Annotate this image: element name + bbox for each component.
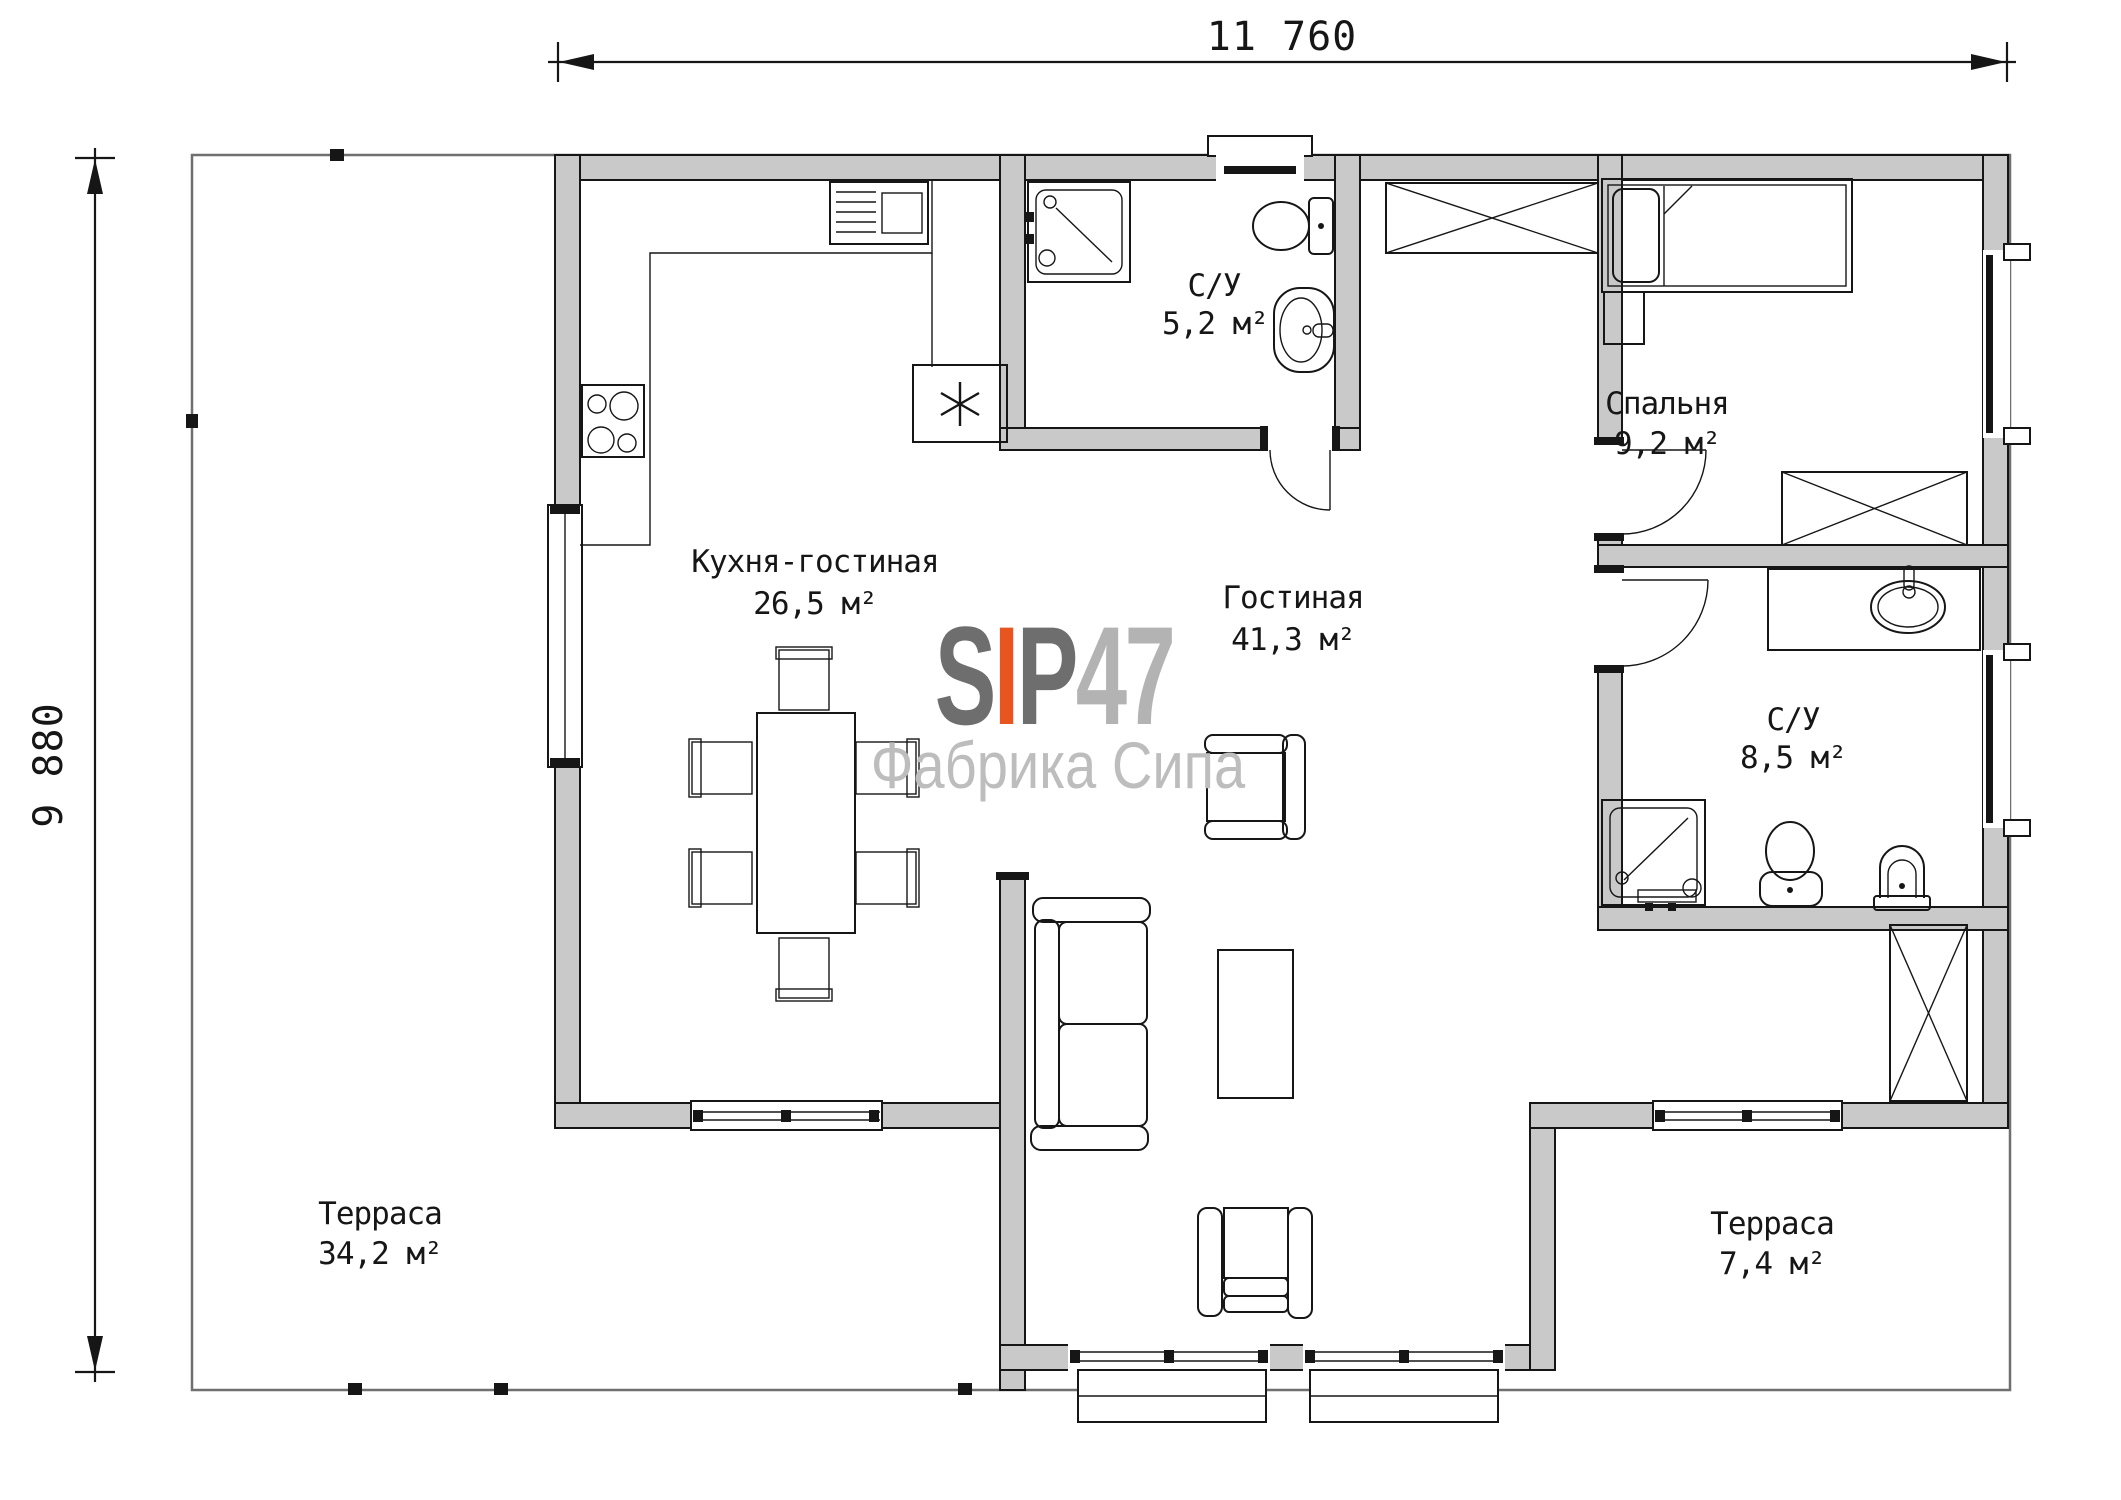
deck-post bbox=[958, 1383, 972, 1395]
room-area: 5,2 м² bbox=[1162, 306, 1268, 342]
door-swing bbox=[1622, 580, 1708, 666]
door-jamb bbox=[1594, 665, 1624, 673]
armchair-2 bbox=[1198, 1208, 1312, 1318]
armrest bbox=[1198, 1208, 1222, 1316]
dining-chair-left-lower bbox=[689, 849, 752, 907]
wall-living-protrusion-left bbox=[1000, 878, 1025, 1390]
fridge-snowflake-icon bbox=[941, 382, 979, 426]
terrace-door-left bbox=[1068, 1343, 1270, 1422]
window-sash bbox=[693, 1110, 703, 1122]
shower-drain bbox=[1044, 196, 1056, 208]
window-sash bbox=[550, 505, 580, 514]
seat-cushion bbox=[1059, 1024, 1147, 1126]
armrest bbox=[1288, 1208, 1312, 1318]
window-glazing bbox=[1986, 655, 1993, 823]
door-bath2 bbox=[1594, 565, 1708, 673]
door-sash bbox=[1493, 1350, 1503, 1363]
dining-chair-top bbox=[776, 647, 832, 710]
kitchen-counter-edge bbox=[580, 180, 932, 545]
label-bath1: С/У 5,2 м² bbox=[1162, 268, 1268, 342]
window-bottom-left bbox=[691, 1101, 882, 1130]
room-area: 26,5 м² bbox=[753, 586, 877, 622]
burner bbox=[618, 434, 636, 452]
window-kitchen-left bbox=[548, 505, 582, 767]
logo-subtitle: Фабрика Сипа bbox=[871, 729, 1246, 802]
wall-living-protrusion-right bbox=[1530, 1103, 1555, 1370]
backrest bbox=[1224, 1278, 1288, 1296]
door-jamb bbox=[1594, 565, 1624, 573]
bed-blanket-fold bbox=[1664, 186, 1692, 214]
sink-basin bbox=[882, 193, 922, 233]
dining-chair-bottom bbox=[776, 938, 832, 1001]
dimension-top-value: 11 760 bbox=[1207, 14, 1358, 60]
closet-living-nook bbox=[1890, 925, 1967, 1101]
burner bbox=[610, 392, 638, 420]
window-sash bbox=[1224, 166, 1296, 174]
dining-set bbox=[689, 647, 919, 1001]
door-gap bbox=[1268, 426, 1332, 452]
room-area: 9,2 м² bbox=[1614, 426, 1720, 462]
window-bath2-right bbox=[1983, 644, 2030, 836]
window-outer-cap bbox=[2004, 820, 2030, 836]
shower-diagonal bbox=[1624, 818, 1688, 880]
door-jamb bbox=[1594, 533, 1624, 541]
room-area: 8,5 м² bbox=[1740, 740, 1846, 776]
window-outer-cap bbox=[2004, 244, 2030, 260]
armrest bbox=[1031, 1126, 1148, 1150]
burner bbox=[588, 395, 606, 413]
terrace-door-right bbox=[1303, 1343, 1505, 1422]
dimension-arrow-top bbox=[87, 159, 103, 194]
dining-chair-right-lower bbox=[856, 849, 919, 907]
room-name: Терраса bbox=[1710, 1206, 1834, 1242]
seat-cushion bbox=[1059, 922, 1147, 1024]
door-swing bbox=[1622, 450, 1706, 534]
basin-outline bbox=[1274, 288, 1334, 372]
shower-mixer bbox=[1026, 212, 1034, 222]
door-sash bbox=[1070, 1350, 1080, 1363]
bath2-fixtures bbox=[1602, 566, 1980, 911]
room-area: 34,2 м² bbox=[318, 1236, 442, 1272]
bedroom-furniture bbox=[1602, 179, 1852, 344]
wardrobe-hall bbox=[1386, 183, 1598, 253]
label-terrace-right: Терраса 7,4 м² bbox=[1710, 1206, 1834, 1282]
room-name: Гостиная bbox=[1222, 580, 1363, 616]
dimension-arrow-right bbox=[1971, 54, 2006, 70]
floor-plan-canvas: 11 760 9 880 bbox=[0, 0, 2121, 1500]
door-jamb bbox=[1332, 426, 1340, 450]
room-name: Терраса bbox=[318, 1196, 442, 1232]
burner bbox=[588, 427, 614, 453]
label-terrace-left: Терраса 34,2 м² bbox=[318, 1196, 442, 1272]
label-kitchen-living: Кухня-гостиная 26,5 м² bbox=[691, 544, 938, 622]
storage bbox=[1386, 183, 1967, 1101]
armrest bbox=[1205, 821, 1287, 839]
vanity-counter bbox=[1768, 569, 1980, 650]
bed bbox=[1602, 179, 1852, 292]
shower-mixer bbox=[1026, 234, 1034, 244]
bidet bbox=[1874, 846, 1930, 910]
door-sash bbox=[1164, 1350, 1174, 1363]
wall-bedroom-bottom bbox=[1598, 545, 2008, 567]
window-bath1-top bbox=[1208, 136, 1312, 182]
shower-head-icon bbox=[1039, 250, 1055, 266]
wardrobe-bedroom bbox=[1782, 472, 1967, 545]
door-swing bbox=[1270, 450, 1330, 510]
living-furniture bbox=[1031, 735, 1312, 1318]
label-bath2: С/У 8,5 м² bbox=[1740, 702, 1846, 776]
window-sash bbox=[781, 1110, 791, 1122]
door-sash bbox=[1399, 1350, 1409, 1363]
window-sash bbox=[1742, 1110, 1752, 1122]
backrest bbox=[1224, 1296, 1288, 1312]
vanity-tap-base bbox=[1903, 586, 1915, 598]
shower-cabin bbox=[1026, 182, 1130, 282]
window-bedroom-right bbox=[1983, 244, 2030, 444]
basin-drain bbox=[1303, 326, 1311, 334]
dimension-arrow-bottom bbox=[87, 1336, 103, 1371]
kitchen bbox=[580, 180, 1007, 545]
dimension-top: 11 760 bbox=[548, 14, 2016, 82]
dimension-left: 9 880 bbox=[26, 148, 115, 1382]
dimension-arrow-left bbox=[559, 54, 594, 70]
deck-post bbox=[186, 414, 198, 428]
room-name: Кухня-гостиная bbox=[691, 544, 938, 580]
backrest bbox=[1283, 735, 1305, 839]
window-sash bbox=[1830, 1110, 1840, 1122]
shower-outline bbox=[1028, 182, 1130, 282]
toilet-bowl bbox=[1253, 202, 1309, 250]
window-outer-cap bbox=[2004, 644, 2030, 660]
bidet-drain bbox=[1899, 883, 1905, 889]
floor-plan-page: 11 760 9 880 bbox=[0, 0, 2121, 1500]
washbasin-1 bbox=[1274, 288, 1334, 372]
vanity bbox=[1768, 566, 1980, 650]
room-area: 7,4 м² bbox=[1719, 1246, 1825, 1282]
toilet-2 bbox=[1760, 822, 1822, 906]
toilet-button bbox=[1787, 887, 1793, 893]
shower-diagonal bbox=[1056, 208, 1112, 262]
bidet-body bbox=[1880, 846, 1924, 898]
window-outer-cap bbox=[2004, 428, 2030, 444]
dimension-left-value: 9 880 bbox=[26, 702, 72, 827]
vanity-sink bbox=[1871, 581, 1945, 633]
label-living: Гостиная 41,3 м² bbox=[1222, 580, 1363, 658]
toilet-1 bbox=[1253, 198, 1333, 254]
dining-chair-left-upper bbox=[689, 739, 752, 797]
door-gap bbox=[1596, 573, 1624, 665]
bed-mattress bbox=[1608, 185, 1846, 286]
room-name: С/У bbox=[1767, 702, 1820, 738]
sofa bbox=[1031, 898, 1150, 1150]
room-area: 41,3 м² bbox=[1231, 622, 1355, 658]
vanity-sink-inner bbox=[1878, 587, 1938, 627]
window-sash bbox=[550, 758, 580, 767]
wall-bath2-bottom bbox=[1598, 907, 2008, 930]
wall-bath1-right bbox=[1335, 155, 1360, 450]
window-sash bbox=[1655, 1110, 1665, 1122]
room-name: Спальня bbox=[1605, 386, 1729, 422]
stove bbox=[582, 385, 644, 457]
bed-frame bbox=[1602, 179, 1852, 292]
deck-post bbox=[330, 149, 344, 161]
door-bath1 bbox=[1260, 426, 1340, 510]
wall-end-cap bbox=[996, 872, 1029, 880]
basin-tap bbox=[1313, 324, 1333, 337]
deck-post bbox=[348, 1383, 362, 1395]
label-bedroom: Спальня 9,2 м² bbox=[1605, 386, 1729, 462]
door-jamb bbox=[1260, 426, 1268, 450]
window-glazing bbox=[1986, 255, 1993, 433]
door-sash bbox=[1258, 1350, 1268, 1363]
backrest bbox=[1035, 920, 1059, 1128]
shower-head-icon bbox=[1683, 879, 1701, 897]
logo: SIP47 Фабрика Сипа bbox=[871, 599, 1246, 802]
bidet-inner bbox=[1888, 860, 1916, 898]
window-bottom-right bbox=[1653, 1101, 1842, 1130]
armrest bbox=[1033, 898, 1150, 922]
coffee-table bbox=[1218, 950, 1293, 1098]
kitchen-sink bbox=[830, 182, 928, 244]
door-sash bbox=[1305, 1350, 1315, 1363]
fridge bbox=[913, 365, 1007, 442]
window-sash bbox=[869, 1110, 879, 1122]
dining-table bbox=[757, 713, 855, 933]
seat bbox=[1224, 1208, 1288, 1278]
room-name: С/У bbox=[1188, 268, 1241, 304]
shower-tray bbox=[1036, 190, 1122, 274]
toilet-button bbox=[1318, 223, 1324, 229]
wall-bath1-left bbox=[1000, 155, 1025, 450]
bath1-fixtures bbox=[1026, 182, 1334, 372]
deck-post bbox=[494, 1383, 508, 1395]
basin-bowl bbox=[1280, 298, 1322, 362]
